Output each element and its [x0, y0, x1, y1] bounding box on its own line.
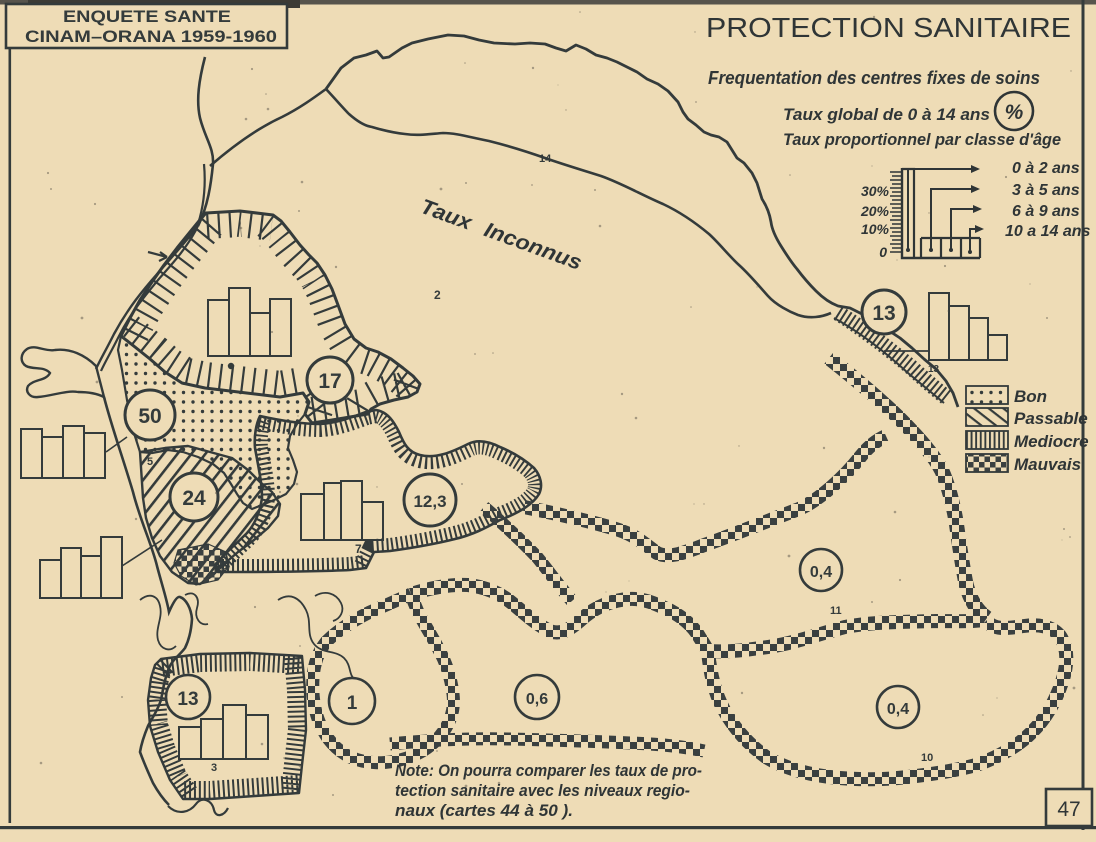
- svg-text:47: 47: [1057, 798, 1080, 821]
- svg-text:20%: 20%: [860, 203, 890, 219]
- svg-text:13: 13: [928, 364, 940, 375]
- svg-text:17: 17: [318, 370, 341, 393]
- svg-text:Frequentation des centres fixe: Frequentation des centres fixes de soins: [708, 68, 1040, 88]
- svg-text:13: 13: [872, 302, 895, 325]
- svg-text:10: 10: [921, 752, 933, 764]
- svg-text:PROTECTION SANITAIRE: PROTECTION SANITAIRE: [706, 12, 1071, 43]
- svg-text:7: 7: [355, 542, 362, 556]
- svg-text:0: 0: [879, 244, 887, 260]
- svg-text:0,4: 0,4: [810, 564, 832, 581]
- svg-text:13: 13: [177, 689, 198, 710]
- svg-text:10 a 14 ans: 10 a 14 ans: [1005, 223, 1091, 240]
- svg-text:0,6: 0,6: [526, 691, 548, 708]
- svg-text:CINAM–ORANA 1959-1960: CINAM–ORANA 1959-1960: [25, 28, 277, 46]
- svg-text:naux (cartes 44 à 50 ).: naux (cartes 44 à 50 ).: [395, 801, 573, 820]
- svg-text:ENQUETE SANTE: ENQUETE SANTE: [63, 8, 231, 26]
- svg-text:0 à 2 ans: 0 à 2 ans: [1012, 160, 1080, 177]
- svg-text:Mauvais: Mauvais: [1014, 455, 1081, 474]
- svg-text:Mediocre: Mediocre: [1014, 432, 1089, 451]
- svg-text:6 à 9 ans: 6 à 9 ans: [1012, 203, 1080, 220]
- svg-text:5: 5: [147, 456, 153, 468]
- svg-text:1: 1: [347, 693, 358, 714]
- svg-text:10%: 10%: [861, 221, 890, 237]
- svg-text:3 à 5 ans: 3 à 5 ans: [1012, 182, 1080, 199]
- svg-text:12,3: 12,3: [413, 492, 446, 511]
- svg-text:Passable: Passable: [1014, 409, 1088, 428]
- svg-text:11: 11: [830, 605, 842, 617]
- svg-text:2: 2: [434, 288, 441, 302]
- svg-text:50: 50: [138, 405, 161, 428]
- svg-text:24: 24: [182, 487, 206, 510]
- svg-text:Taux proportionnel par classe: Taux proportionnel par classe d'âge: [783, 130, 1061, 149]
- svg-text:%: %: [1005, 101, 1024, 124]
- svg-text:3: 3: [211, 762, 217, 774]
- svg-text:0,4: 0,4: [887, 701, 909, 718]
- svg-text:14: 14: [539, 153, 552, 165]
- svg-text:30%: 30%: [861, 183, 890, 199]
- svg-text:Bon: Bon: [1014, 387, 1047, 406]
- svg-text:Taux global de 0 à 14 ans: Taux global de 0 à 14 ans: [783, 105, 990, 124]
- svg-text:Note: On pourra comparer les t: Note: On pourra comparer les taux de pro…: [395, 761, 702, 780]
- svg-text:tection sanitaire avec les niv: tection sanitaire avec les niveaux regio…: [395, 781, 690, 800]
